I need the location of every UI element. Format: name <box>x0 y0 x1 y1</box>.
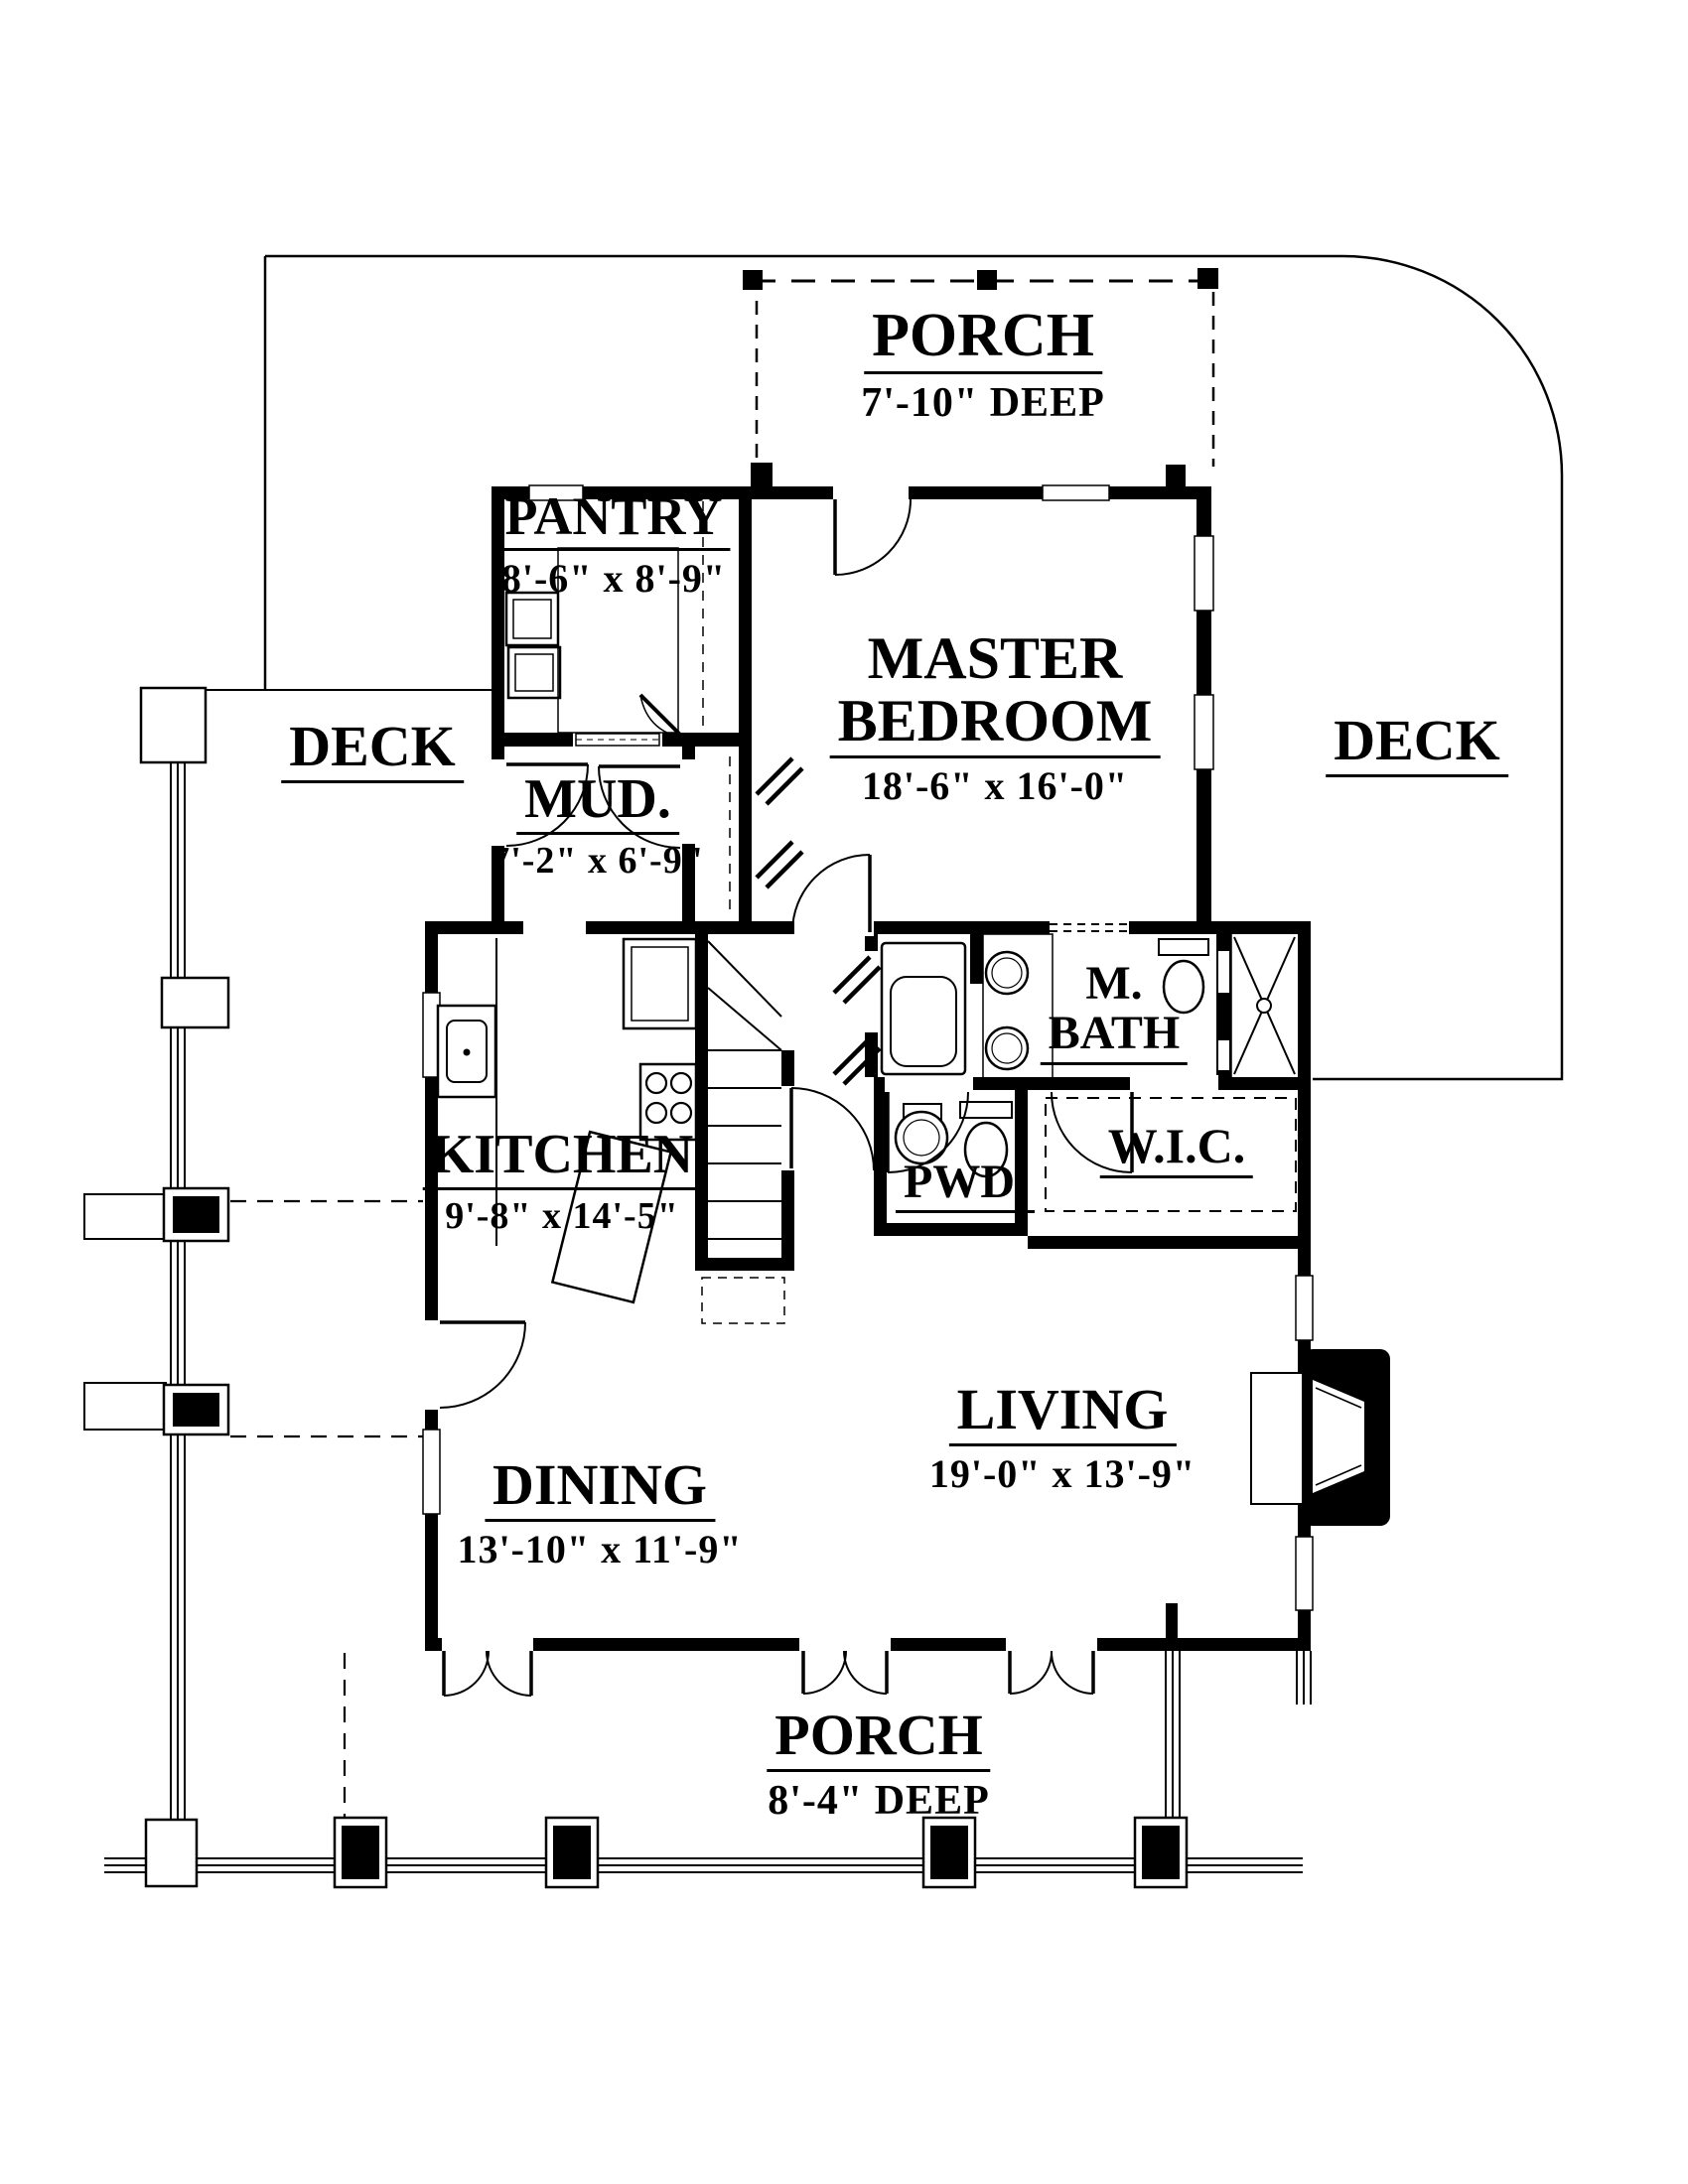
railings <box>104 695 1311 1872</box>
porch-column-icon <box>923 1818 975 1887</box>
room-label-dining: DINING 13'-10" x 11'-9" <box>457 1455 742 1570</box>
room-label-porch-bottom: PORCH 8'-4" DEEP <box>767 1706 990 1823</box>
window-icon <box>1195 695 1213 769</box>
floor-plan: PORCH 7'-10" DEEP PANTRY 8'-6" x 8'-9" M… <box>0 0 1688 2184</box>
window-icon <box>423 1430 440 1514</box>
deck-post-icon <box>162 978 228 1027</box>
floor-plan-drawing <box>0 0 1688 2184</box>
deck-post-icon <box>141 688 206 762</box>
porch-post-icon <box>743 270 763 290</box>
deck-roof-dashed-lines <box>230 1201 423 1852</box>
room-dimensions: 13'-10" x 11'-9" <box>457 1522 742 1570</box>
room-name: PORCH <box>767 1706 990 1772</box>
room-dimensions: 7'-10" DEEP <box>861 374 1105 425</box>
room-name: PANTRY <box>496 488 730 551</box>
porch-column-icon <box>335 1818 386 1887</box>
window-icon <box>1296 1537 1313 1610</box>
room-label-living: LIVING 19'-0" x 13'-9" <box>929 1380 1196 1495</box>
room-label-deck-right: DECK <box>1326 711 1508 777</box>
room-label-deck-left: DECK <box>281 717 464 783</box>
room-label-mud: MUD. 7'-2" x 6'-9" <box>491 770 705 882</box>
toilet-icon <box>1159 939 1208 955</box>
room-dimensions: 8'-6" x 8'-9" <box>496 551 730 600</box>
room-name: PORCH <box>864 304 1102 374</box>
porch-post-icon <box>1166 465 1186 488</box>
room-label-pantry: PANTRY 8'-6" x 8'-9" <box>496 488 730 600</box>
room-label-porch-top: PORCH 7'-10" DEEP <box>861 304 1105 425</box>
window-icon <box>1195 536 1213 611</box>
porch-post-icon <box>1197 268 1218 289</box>
room-name: MASTER <box>830 627 1161 690</box>
fireplace-icon <box>1251 1349 1390 1526</box>
room-label-kitchen: KITCHEN 9'-8" x 14'-5" <box>423 1126 702 1237</box>
room-name: W.I.C. <box>1100 1120 1253 1178</box>
room-dimensions: 19'-0" x 13'-9" <box>929 1446 1196 1495</box>
hearth <box>1251 1373 1303 1504</box>
porch-column-icon <box>546 1818 598 1887</box>
room-name: LIVING <box>949 1380 1177 1446</box>
porch-post-icon <box>977 270 997 290</box>
room-dimensions: 9'-8" x 14'-5" <box>423 1190 702 1237</box>
kitchen-fixtures <box>438 938 696 1302</box>
room-label-master-bedroom: MASTER BEDROOM 18'-6" x 16'-0" <box>830 627 1161 807</box>
room-name: M. <box>1041 959 1188 1009</box>
room-label-wic: W.I.C. <box>1100 1120 1253 1178</box>
room-name: DECK <box>281 717 464 783</box>
room-name: DECK <box>1326 711 1508 777</box>
deck-step <box>84 1194 166 1239</box>
room-dimensions: 18'-6" x 16'-0" <box>830 758 1161 807</box>
porch-column-icon <box>164 1385 228 1434</box>
bathtub-icon <box>882 943 965 1074</box>
window-icon <box>1043 485 1109 500</box>
porch-column-icon <box>1135 1818 1187 1887</box>
room-label-powder: PWD. <box>896 1158 1035 1213</box>
porch-post-icon <box>751 463 773 486</box>
room-name: MUD. <box>516 770 679 835</box>
room-name: PWD. <box>896 1158 1035 1213</box>
deck-step <box>84 1383 166 1430</box>
room-dimensions: 8'-4" DEEP <box>767 1772 990 1823</box>
room-name: BATH <box>1041 1009 1188 1064</box>
room-name: KITCHEN <box>423 1126 702 1190</box>
room-dimensions: 7'-2" x 6'-9" <box>491 835 705 882</box>
window-icon <box>1296 1276 1313 1340</box>
room-name: DINING <box>485 1455 715 1522</box>
porch-column-icon <box>164 1188 228 1241</box>
pantry-cabinet <box>506 593 558 645</box>
deck-post-icon <box>146 1820 197 1886</box>
room-label-master-bath: M. BATH <box>1041 959 1188 1065</box>
room-name: BEDROOM <box>830 690 1161 758</box>
refrigerator-icon <box>624 939 696 1028</box>
